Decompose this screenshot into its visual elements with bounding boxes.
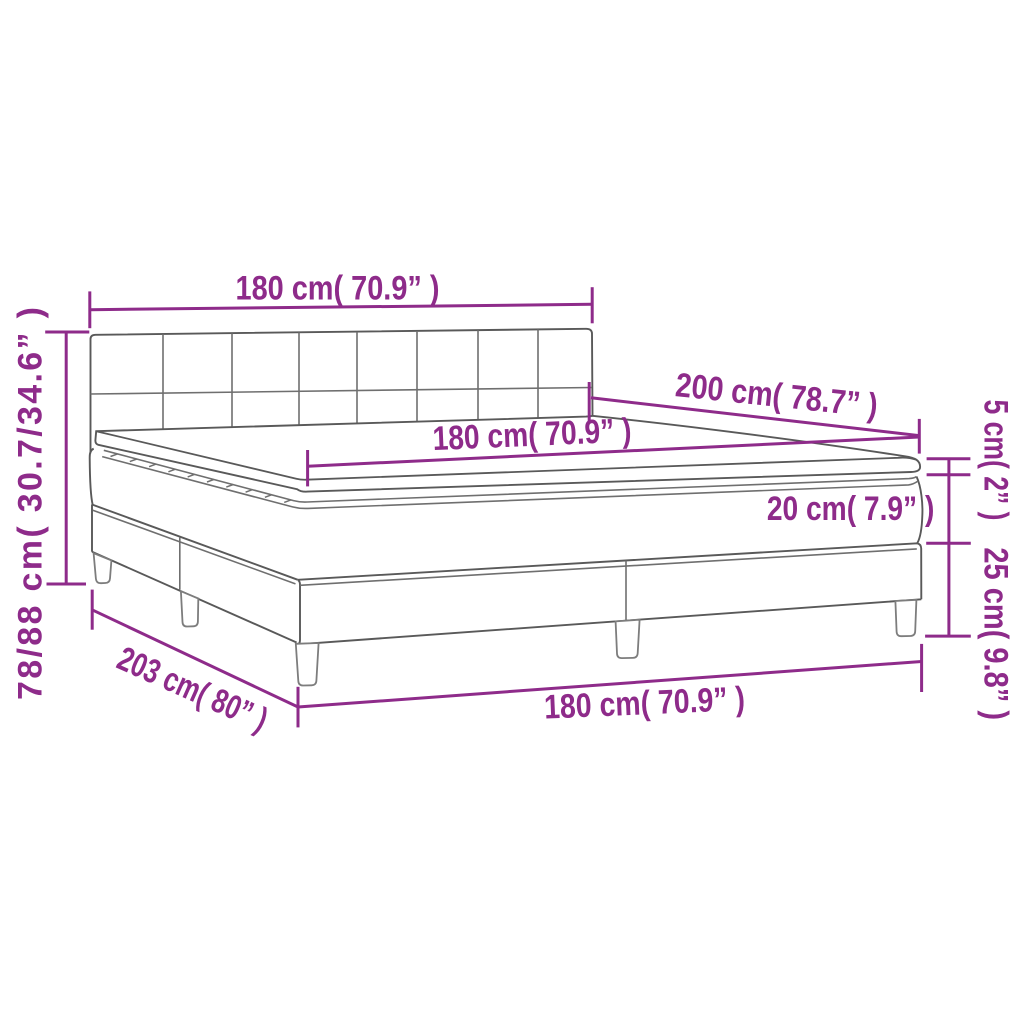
svg-text:78/88 cm( 30.7/34.6” ): 78/88 cm( 30.7/34.6” ) (11, 307, 49, 700)
svg-text:20 cm( 7.9” ): 20 cm( 7.9” ) (767, 490, 935, 528)
svg-text:25 cm( 9.8” ): 25 cm( 9.8” ) (977, 547, 1015, 720)
svg-text:5 cm( 2” ): 5 cm( 2” ) (977, 400, 1015, 521)
svg-text:180 cm( 70.9” ): 180 cm( 70.9” ) (236, 270, 440, 308)
